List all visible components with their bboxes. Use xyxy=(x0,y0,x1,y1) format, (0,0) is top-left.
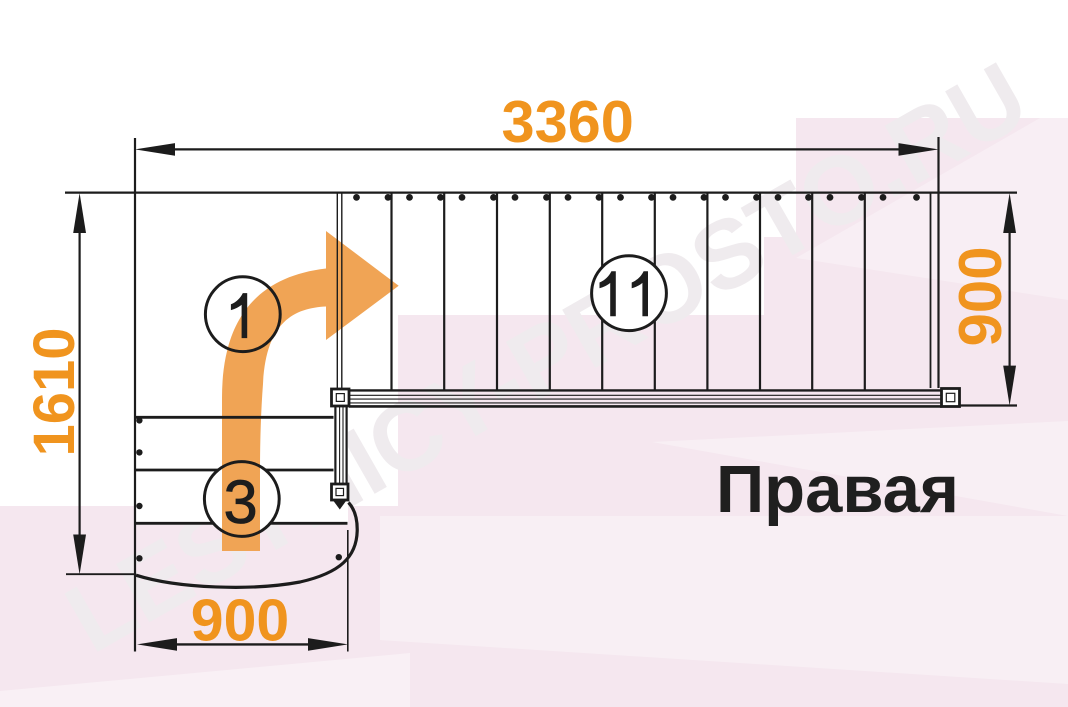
svg-text:900: 900 xyxy=(947,246,1014,346)
svg-text:900: 900 xyxy=(191,588,289,654)
svg-text:3360: 3360 xyxy=(502,88,634,155)
svg-text:Правая: Правая xyxy=(716,452,959,527)
svg-text:1610: 1610 xyxy=(22,327,87,456)
svg-text:3: 3 xyxy=(223,468,257,537)
